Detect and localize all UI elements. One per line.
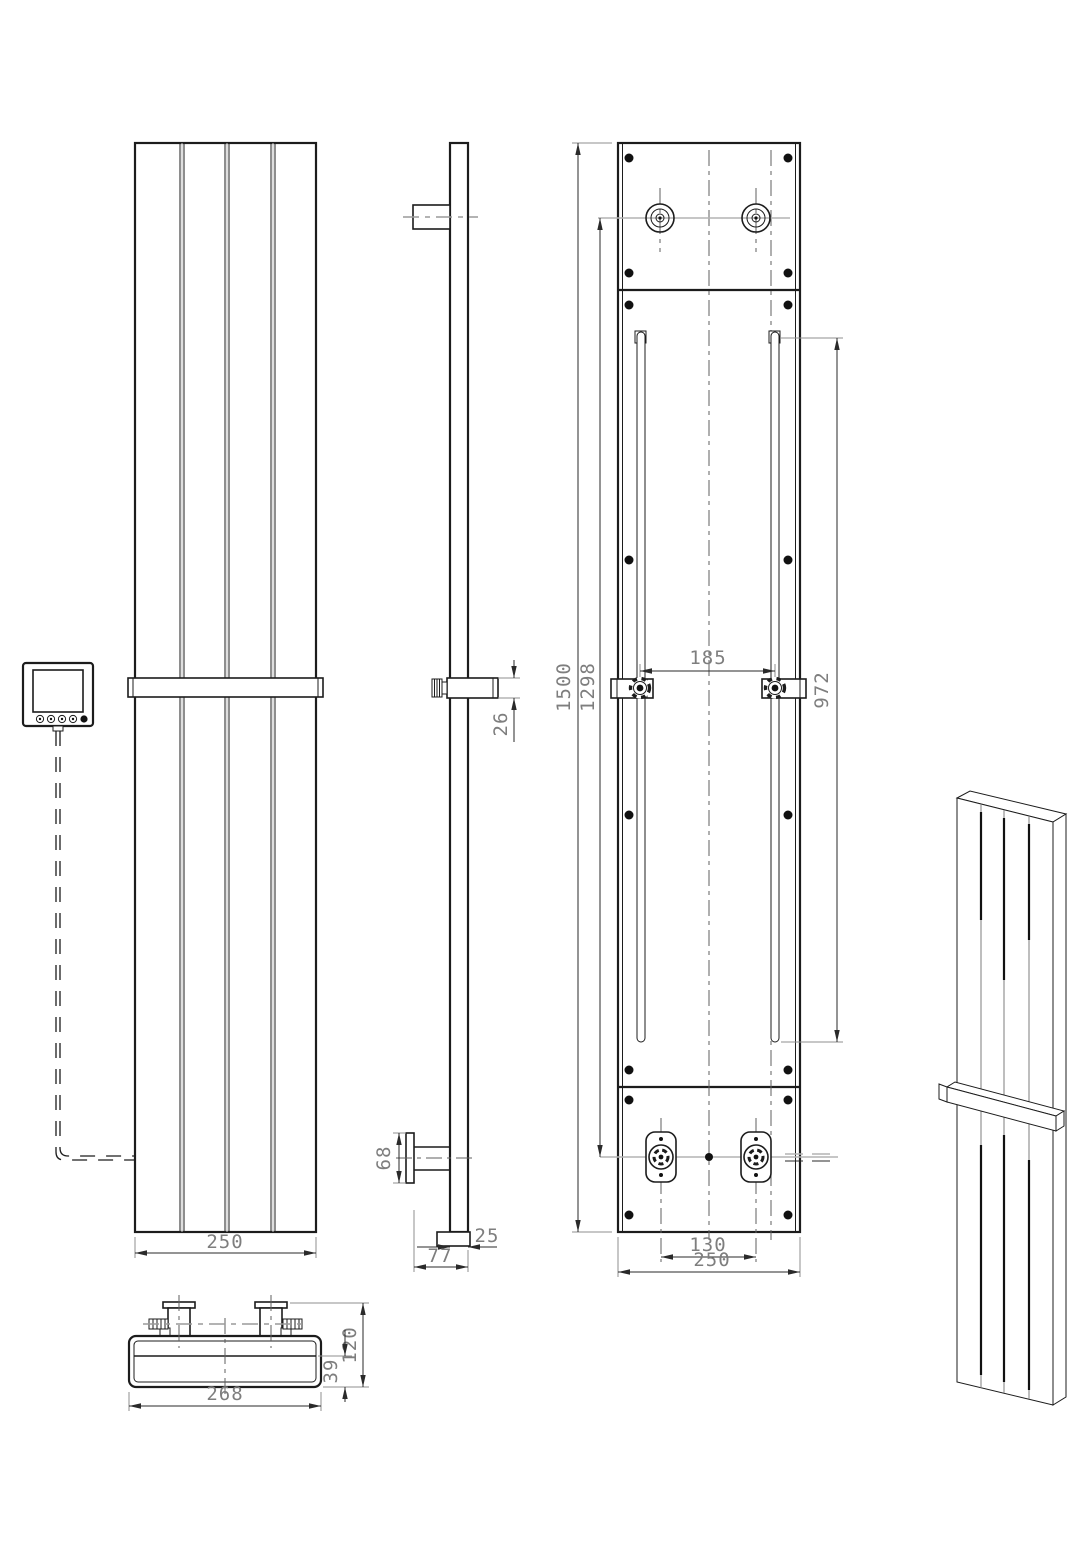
dim-bar-offset: 26 — [490, 660, 520, 742]
star-knob-right — [765, 678, 786, 699]
towel-bar-front — [128, 678, 323, 697]
dim-depth-total-label: 77 — [428, 1245, 453, 1267]
dim-height-total-label: 1500 — [553, 662, 575, 712]
controller-cable — [56, 731, 135, 1160]
dim-back-width-label: 250 — [693, 1249, 730, 1271]
back-view: 1500 1298 972 185 130 — [553, 143, 843, 1277]
center-hole — [705, 1153, 713, 1161]
controller — [23, 663, 135, 1160]
dim-bottom-body-height-label: 39 — [320, 1359, 342, 1384]
valve-left — [646, 1132, 676, 1182]
dim-bottom-width-label: 268 — [206, 1383, 243, 1405]
valve-right — [741, 1132, 771, 1182]
controller-screen — [33, 670, 83, 712]
dim-panel-depth-label: 25 — [475, 1225, 500, 1247]
dim-bar-offset-label: 26 — [490, 712, 512, 737]
side-view: 26 68 25 77 — [373, 143, 520, 1272]
dim-inlet-height: 1298 — [577, 218, 600, 1157]
dim-bottom-height-label: 120 — [339, 1326, 361, 1363]
dim-inlet-height-label: 1298 — [577, 662, 599, 712]
towel-bar-side — [432, 678, 498, 698]
dim-bracket-spacing-label: 185 — [689, 647, 726, 669]
cable-gland — [53, 726, 63, 731]
knurled-knob-left — [149, 1319, 170, 1336]
sliding-bracket-left — [611, 678, 653, 699]
bottom-view: 120 39 268 — [129, 1295, 369, 1411]
technical-drawing-sheet: 250 — [0, 0, 1080, 1545]
towel-bar-knob — [432, 679, 447, 697]
front-view: 250 — [128, 143, 323, 1258]
sliding-bracket-right — [762, 678, 806, 699]
iso-view — [939, 791, 1066, 1405]
bottom-header-side — [437, 1232, 470, 1246]
knurled-knob-right — [281, 1319, 302, 1336]
dim-front-width: 250 — [135, 1231, 316, 1258]
dim-front-width-label: 250 — [206, 1231, 243, 1253]
dim-slot-length-label: 972 — [811, 671, 833, 708]
star-knob-left — [630, 678, 651, 699]
dim-flange-height-label: 68 — [373, 1146, 395, 1171]
